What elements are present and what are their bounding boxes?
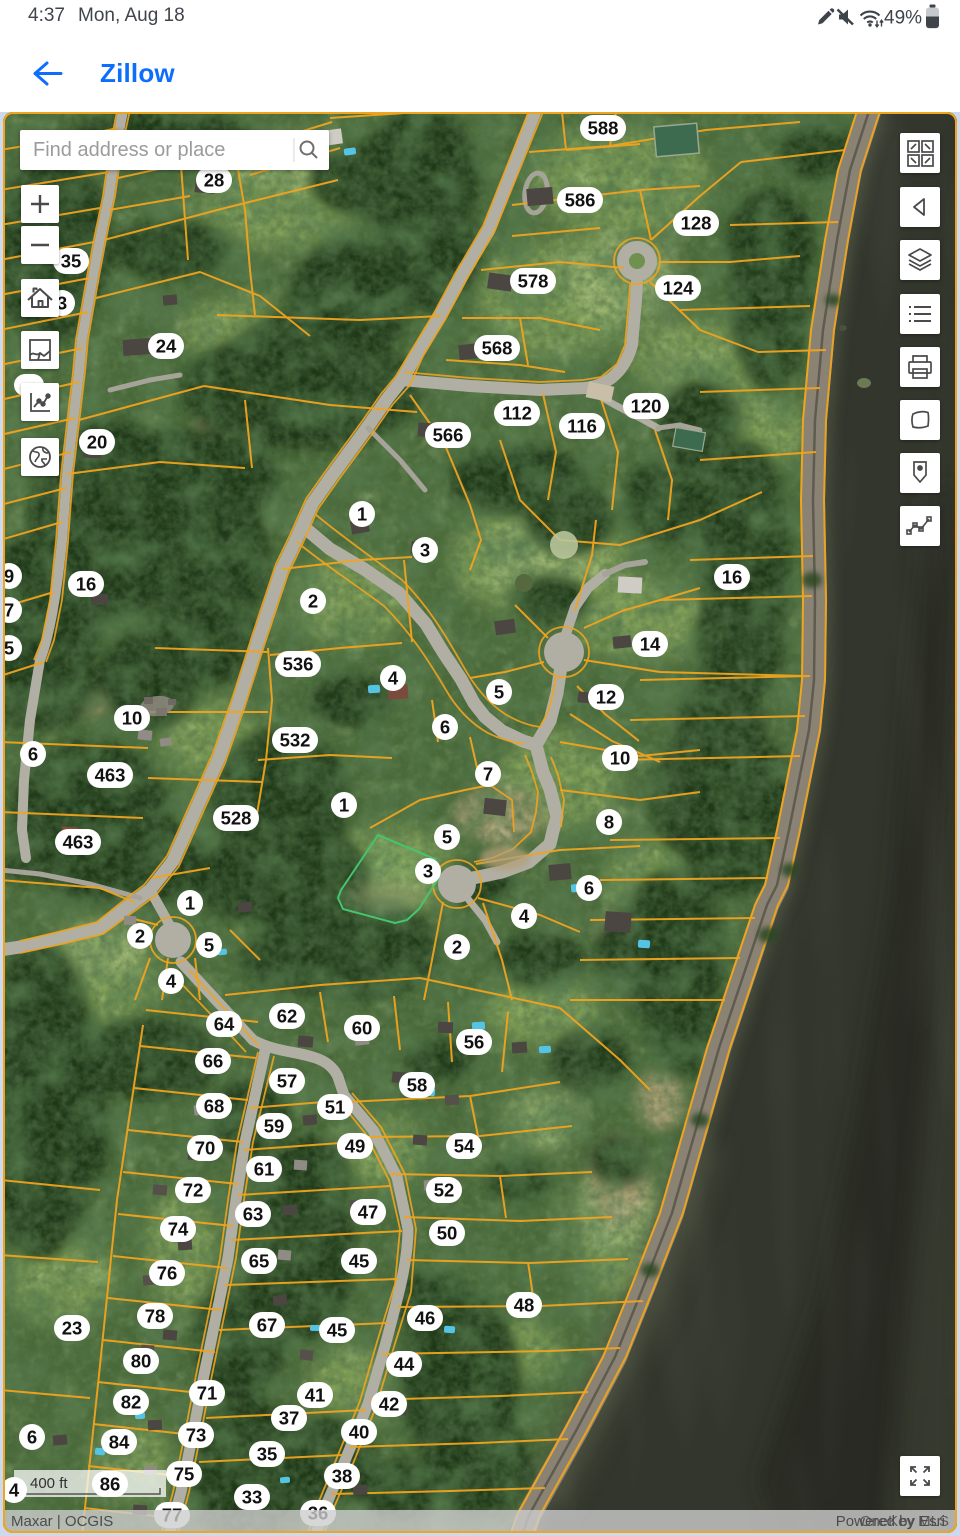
svg-text:463: 463 [63,832,94,853]
svg-text:28: 28 [204,170,225,191]
svg-text:52: 52 [434,1180,455,1201]
svg-text:84: 84 [109,1432,130,1453]
svg-text:7: 7 [4,600,14,621]
svg-text:463: 463 [95,765,126,786]
svg-text:586: 586 [565,190,596,211]
svg-text:7: 7 [483,764,493,785]
svg-text:46: 46 [415,1308,436,1329]
svg-text:4: 4 [519,906,530,927]
svg-text:3: 3 [420,540,430,561]
svg-text:60: 60 [352,1018,373,1039]
svg-text:532: 532 [280,730,311,751]
svg-text:5: 5 [204,935,214,956]
svg-text:14: 14 [640,634,661,655]
svg-text:45: 45 [327,1320,348,1341]
svg-text:48: 48 [514,1295,535,1316]
svg-text:70: 70 [195,1138,216,1159]
svg-text:56: 56 [464,1032,485,1053]
svg-text:3: 3 [423,861,433,882]
svg-text:112: 112 [502,403,532,424]
svg-text:59: 59 [264,1116,285,1137]
svg-text:67: 67 [257,1315,278,1336]
svg-text:35: 35 [257,1444,278,1465]
svg-text:2: 2 [308,591,318,612]
svg-text:24: 24 [156,336,177,357]
svg-text:86: 86 [100,1474,121,1495]
svg-text:16: 16 [722,567,743,588]
svg-text:588: 588 [588,118,619,139]
svg-text:49%: 49% [884,8,922,29]
svg-text:58: 58 [407,1075,428,1096]
svg-text:68: 68 [204,1096,225,1117]
svg-text:9: 9 [4,566,14,587]
svg-text:64: 64 [214,1014,235,1035]
svg-text:10: 10 [610,748,631,769]
svg-text:2: 2 [452,937,462,958]
svg-text:578: 578 [518,271,549,292]
svg-text:61: 61 [254,1159,275,1180]
svg-text:75: 75 [174,1464,195,1485]
svg-text:63: 63 [243,1204,264,1225]
svg-text:6: 6 [28,744,38,765]
svg-text:400 ft: 400 ft [30,1475,68,1492]
svg-text:120: 120 [631,396,662,417]
svg-text:54: 54 [454,1136,475,1157]
svg-text:1: 1 [185,893,195,914]
svg-text:76: 76 [157,1263,178,1284]
svg-text:62: 62 [277,1006,298,1027]
svg-text:44: 44 [394,1354,415,1375]
svg-text:124: 124 [663,278,695,299]
svg-text:10: 10 [122,708,143,729]
svg-text:2: 2 [135,926,145,947]
svg-text:41: 41 [305,1385,326,1406]
svg-text:66: 66 [203,1051,224,1072]
svg-text:78: 78 [145,1306,166,1327]
svg-text:4: 4 [388,668,399,689]
svg-text:47: 47 [358,1202,379,1223]
svg-text:1: 1 [357,504,367,525]
svg-text:74: 74 [168,1219,189,1240]
svg-text:20: 20 [87,432,108,453]
svg-text:65: 65 [249,1251,270,1272]
svg-text:51: 51 [325,1097,346,1118]
svg-text:5: 5 [4,638,14,659]
svg-text:12: 12 [596,687,617,708]
svg-text:23: 23 [62,1318,83,1339]
svg-text:82: 82 [121,1392,142,1413]
svg-text:5: 5 [494,682,504,703]
svg-text:33: 33 [242,1487,263,1508]
svg-text:45: 45 [349,1251,370,1272]
svg-text:5: 5 [442,827,452,848]
svg-text:568: 568 [482,338,513,359]
svg-text:6: 6 [440,717,450,738]
svg-text:40: 40 [349,1422,370,1443]
svg-text:128: 128 [681,213,712,234]
svg-text:49: 49 [345,1136,366,1157]
svg-text:42: 42 [379,1394,400,1415]
svg-text:57: 57 [277,1071,298,1092]
svg-text:8: 8 [604,812,614,833]
svg-text:50: 50 [437,1223,458,1244]
svg-text:72: 72 [183,1180,204,1201]
svg-text:116: 116 [567,416,597,437]
svg-text:38: 38 [332,1466,353,1487]
svg-text:6: 6 [584,878,594,899]
svg-text:4: 4 [9,1480,20,1501]
svg-text:73: 73 [186,1425,207,1446]
svg-text:71: 71 [197,1383,218,1404]
svg-text:528: 528 [221,808,252,829]
svg-text:4: 4 [166,971,177,992]
svg-text:80: 80 [131,1351,152,1372]
svg-text:536: 536 [283,654,314,675]
svg-text:1: 1 [339,795,349,816]
svg-text:566: 566 [433,425,464,446]
svg-text:16: 16 [76,574,97,595]
svg-text:35: 35 [61,251,82,272]
svg-text:6: 6 [27,1427,37,1448]
svg-text:37: 37 [279,1408,300,1429]
